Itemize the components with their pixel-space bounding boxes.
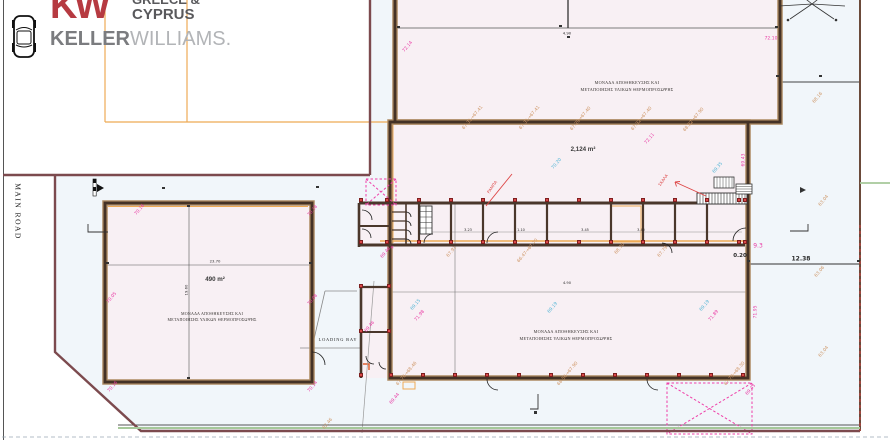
column-marker bbox=[581, 373, 585, 377]
loading-bay-label: LOADING BAY bbox=[314, 337, 362, 342]
column-marker bbox=[705, 198, 709, 202]
column-marker bbox=[741, 373, 745, 377]
spot-annotation: 71.95 bbox=[754, 306, 759, 319]
column-marker bbox=[743, 198, 747, 202]
column-marker bbox=[709, 373, 713, 377]
column-marker bbox=[359, 198, 363, 202]
logo-region-line2: CYPRUS bbox=[132, 6, 195, 23]
floor-plan-sheet: KW GREECE & CYPRUS KELLERWILLIAMS. MAIN … bbox=[0, 0, 890, 440]
tick-mark bbox=[747, 260, 750, 263]
column-marker bbox=[743, 240, 747, 244]
main-road-label: MAIN ROAD bbox=[14, 181, 23, 243]
tick-mark bbox=[397, 26, 400, 29]
column-marker bbox=[481, 198, 485, 202]
hall-area-label: 2,124 m² bbox=[553, 146, 613, 153]
spot-annotation: 0.20 bbox=[733, 253, 747, 259]
keller-williams-wordmark: KELLERWILLIAMS. bbox=[50, 28, 231, 51]
tick-mark bbox=[309, 262, 312, 265]
spot-annotation: 69.43 bbox=[742, 154, 747, 167]
column-marker bbox=[545, 240, 549, 244]
top-unit-label: ΜΟΝΑΔΑ ΑΠΟΘΗΚΕΥΣΗΣ ΚΑΙ ΜΕΤΑΠΟΙΗΣΗΣ ΥΛΙΚΩ… bbox=[547, 80, 707, 93]
column-marker bbox=[517, 373, 521, 377]
left-area-label: 490 m² bbox=[195, 276, 235, 283]
column-marker bbox=[449, 240, 453, 244]
spot-annotation: 3.23 bbox=[464, 228, 472, 232]
site-plan-drawing bbox=[0, 0, 890, 440]
column-marker bbox=[417, 198, 421, 202]
column-marker bbox=[673, 240, 677, 244]
column-marker bbox=[673, 198, 677, 202]
column-marker bbox=[545, 198, 549, 202]
left-unit-label: ΜΟΝΑΔΑ ΑΠΟΘΗΚΕΥΣΗΣ ΚΑΙ ΜΕΤΑΠΟΙΗΣΗΣ ΥΛΙΚΩ… bbox=[147, 311, 277, 323]
spot-annotation: 4.90 bbox=[563, 281, 571, 285]
column-marker bbox=[577, 198, 581, 202]
car-icon bbox=[12, 16, 36, 57]
tick-mark bbox=[187, 377, 190, 380]
column-marker bbox=[609, 198, 613, 202]
column-marker bbox=[453, 373, 457, 377]
column-marker bbox=[421, 373, 425, 377]
column-marker bbox=[385, 240, 389, 244]
tick-mark bbox=[162, 187, 165, 190]
tick-mark bbox=[559, 25, 562, 28]
tick-mark bbox=[857, 260, 860, 263]
column-marker bbox=[737, 240, 741, 244]
spot-annotation: 1.10 bbox=[517, 228, 525, 232]
tick-mark bbox=[187, 205, 190, 208]
tick-mark bbox=[819, 75, 822, 78]
column-marker bbox=[449, 198, 453, 202]
spot-annotation: 3.40 bbox=[637, 228, 645, 232]
column-marker bbox=[359, 373, 363, 377]
spot-annotation: 12.38 bbox=[792, 256, 811, 263]
tick-mark bbox=[567, 36, 570, 39]
kw-logo: KW bbox=[50, 0, 107, 28]
column-marker bbox=[481, 240, 485, 244]
tick-mark bbox=[106, 262, 109, 265]
column-marker bbox=[387, 329, 391, 333]
column-marker bbox=[513, 240, 517, 244]
column-marker bbox=[359, 284, 363, 288]
column-marker bbox=[359, 329, 363, 333]
column-marker bbox=[577, 240, 581, 244]
left-unit-label-line2: ΜΕΤΑΠΟΙΗΣΗΣ ΥΛΙΚΩΝ ΘΕΡΜΟΠΡΟΣΩΨΗΣ bbox=[147, 317, 277, 323]
tick-mark bbox=[776, 75, 779, 78]
brand-light: WILLIAMS. bbox=[130, 28, 231, 50]
column-marker bbox=[645, 373, 649, 377]
spot-annotation: 9.3 bbox=[753, 243, 763, 250]
tick-mark bbox=[775, 26, 778, 29]
tick-mark bbox=[316, 186, 319, 189]
column-marker bbox=[677, 373, 681, 377]
column-marker bbox=[359, 240, 363, 244]
column-marker bbox=[417, 240, 421, 244]
column-marker bbox=[389, 373, 393, 377]
spot-annotation: 72.10 bbox=[765, 37, 778, 42]
column-marker bbox=[613, 373, 617, 377]
column-marker bbox=[387, 284, 391, 288]
column-marker bbox=[513, 198, 517, 202]
spot-annotation: 3.45 bbox=[581, 228, 589, 232]
spot-annotation: ✳ bbox=[390, 245, 394, 251]
column-marker bbox=[641, 240, 645, 244]
bottom-unit-label: ΜΟΝΑΔΑ ΑΠΟΘΗΚΕΥΣΗΣ ΚΑΙ ΜΕΤΑΠΟΙΗΣΗΣ ΥΛΙΚΩ… bbox=[486, 329, 646, 342]
column-marker bbox=[609, 240, 613, 244]
column-marker bbox=[705, 240, 709, 244]
column-marker bbox=[485, 373, 489, 377]
column-marker bbox=[385, 198, 389, 202]
column-marker bbox=[737, 198, 741, 202]
top-unit-label-line2: ΜΕΤΑΠΟΙΗΣΗΣ ΥΛΙΚΩΝ ΘΕΡΜΟΠΡΟΣΩΨΗΣ bbox=[547, 87, 707, 94]
column-marker bbox=[549, 373, 553, 377]
column-marker bbox=[641, 198, 645, 202]
spot-annotation: 23.70 bbox=[210, 259, 221, 264]
brand-bold: KELLER bbox=[50, 28, 130, 50]
spot-annotation: 19.60 bbox=[184, 285, 189, 296]
bottom-unit-label-line2: ΜΕΤΑΠΟΙΗΣΗΣ ΥΛΙΚΩΝ ΘΕΡΜΟΠΡΟΣΩΨΗΣ bbox=[486, 336, 646, 343]
